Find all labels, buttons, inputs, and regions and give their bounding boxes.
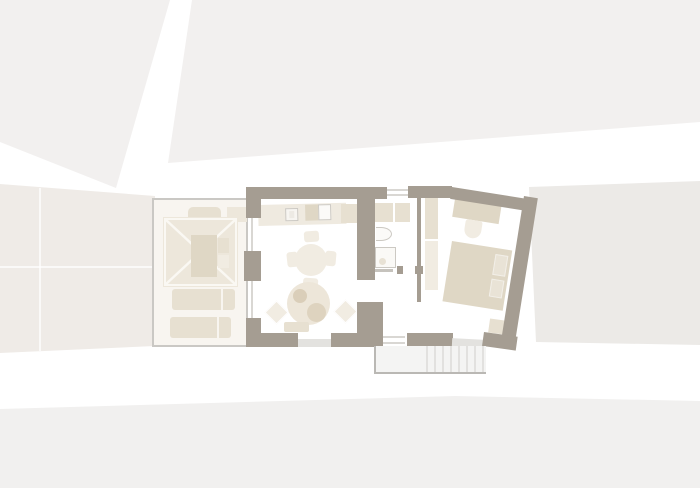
stair-steps (426, 346, 486, 372)
floorplan-canvas (0, 0, 700, 488)
wall-bench (284, 322, 309, 332)
lounge-table-round (287, 282, 330, 325)
sun-lounger-2 (170, 317, 231, 338)
dining-chair-east (324, 251, 336, 267)
site-grid-line-horizontal (0, 266, 154, 268)
lounger-headrest-line (217, 317, 219, 338)
wall-divider-living-bath (357, 198, 375, 280)
wall-thin-bath-bedroom (417, 197, 421, 302)
door-frame-terrace-1 (251, 218, 253, 251)
shower-closet (375, 203, 410, 222)
sun-lounger-1 (172, 289, 235, 310)
window-top-line-1 (387, 189, 408, 191)
bath-door-leaf (375, 269, 393, 272)
window-top-line-2 (387, 194, 408, 196)
diamond-chair-east (333, 299, 357, 323)
cooktop-right (318, 204, 331, 220)
shower-tray (375, 247, 396, 268)
diamond-chair-west (264, 300, 288, 324)
wardrobe-upper (425, 198, 438, 239)
desk-chair (463, 219, 483, 239)
wall-lower-block (357, 302, 383, 347)
wall-hall-bottom (407, 333, 453, 347)
wardrobe-lower (425, 241, 438, 290)
site-grid-line-vertical (39, 188, 41, 351)
exterior-staircase (374, 346, 486, 374)
pergola-stool-1 (218, 238, 229, 253)
cooktop (305, 204, 331, 221)
shower-drain (379, 258, 386, 265)
double-bed (442, 241, 512, 311)
cooktop-left (305, 204, 318, 220)
wash-basin (376, 227, 392, 241)
wall-living-bottom-mid (331, 333, 359, 347)
bed-pillow-2 (489, 279, 505, 299)
window-bottom-line-2 (383, 342, 405, 344)
lounge-plate-large (307, 303, 326, 322)
door-frame-terrace-2 (251, 281, 253, 318)
pergola-stool-2 (218, 255, 229, 268)
wall-stub-hall-right (415, 266, 423, 274)
kitchen-counter (258, 203, 347, 226)
kitchen-sink (285, 208, 298, 221)
pergola-table (191, 235, 217, 277)
sink-basin (289, 211, 294, 218)
bed-pillow-1 (492, 254, 508, 277)
wall-stub-hall-left (397, 266, 403, 274)
window-bottom-line-1 (383, 336, 405, 338)
wall-top-right-building (408, 186, 452, 198)
wall-living-left-pier (244, 251, 261, 281)
lounge-plate-small (293, 289, 307, 303)
closet-divider-line (393, 203, 395, 222)
dining-chair-west (286, 251, 299, 267)
dining-table-round (295, 244, 327, 276)
dining-chair-north (304, 230, 320, 242)
wall-living-left-top (246, 187, 261, 218)
wall-living-bottom-left (246, 333, 298, 347)
lounger-headrest-line (221, 289, 223, 310)
threshold-living-door (298, 339, 331, 347)
